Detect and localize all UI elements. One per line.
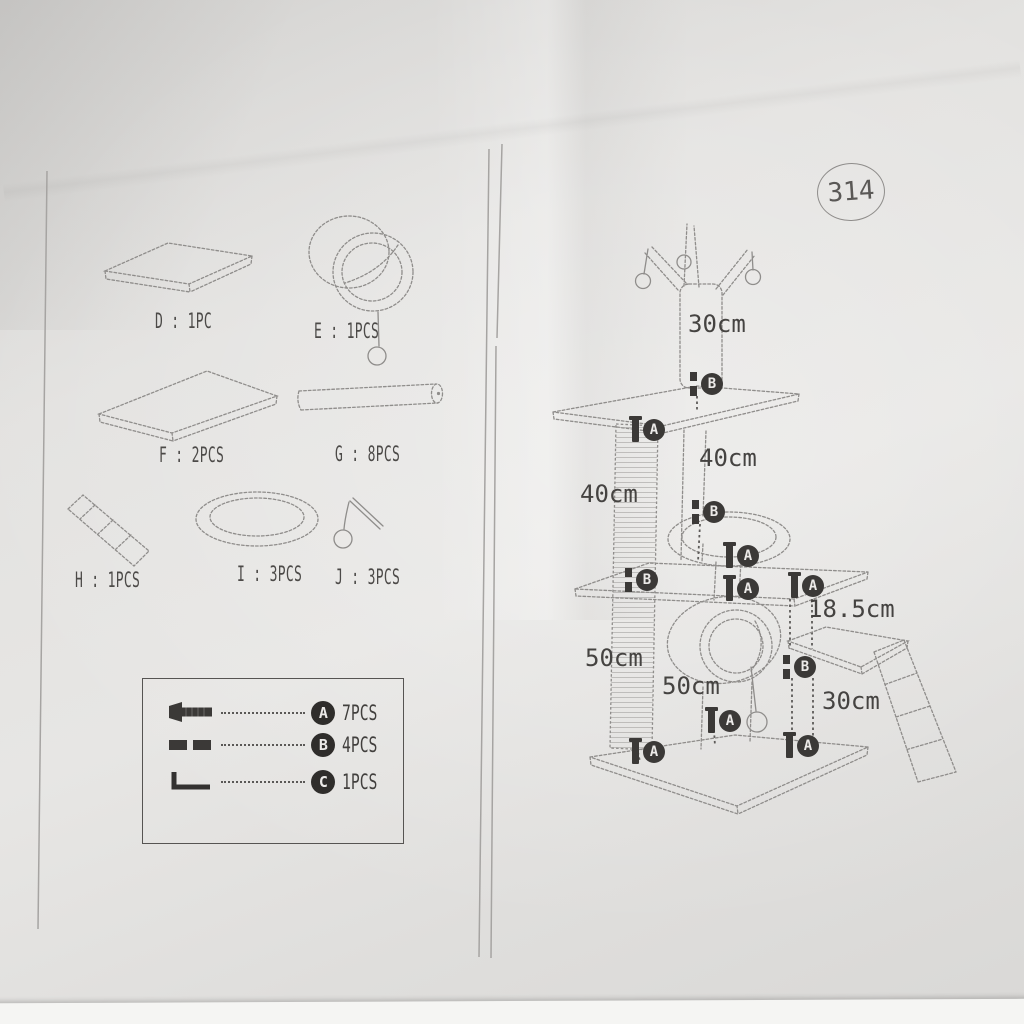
screw-icon xyxy=(632,418,639,442)
screw-icon xyxy=(791,574,798,598)
hardware-row-c: C 1PCS xyxy=(167,766,393,798)
instruction-sheet: 314 D : 1PC E : 1PCS F : 2PCS G : 8PCS H… xyxy=(0,0,1024,1024)
marker-a-bottom-right: A xyxy=(786,734,819,758)
bolt-icon xyxy=(690,372,697,396)
sketch-linework xyxy=(0,0,1024,1024)
screw-icon xyxy=(786,734,793,758)
part-h-ladder-sketch xyxy=(68,495,149,566)
leader-dots xyxy=(221,744,305,746)
hardware-legend-box: A 7PCS B 4PCS C 1PCS xyxy=(142,678,404,844)
hardware-row-b: B 4PCS xyxy=(167,729,393,761)
screw-icon xyxy=(726,544,733,568)
screw-icon xyxy=(632,740,639,764)
part-j-toy-sketch xyxy=(334,498,383,548)
hardware-qty-b: 4PCS xyxy=(342,733,377,757)
hardware-row-a: A 7PCS xyxy=(167,697,393,729)
screw-icon xyxy=(708,709,715,733)
measure-tunnel: 50cm xyxy=(662,674,720,698)
hardware-qty-a: 7PCS xyxy=(342,701,377,725)
marker-a-top-platform: A xyxy=(632,418,665,442)
part-label-i: I : 3PCS xyxy=(237,563,302,586)
leader-dots xyxy=(221,781,305,783)
hardware-letter-a: A xyxy=(311,701,335,725)
marker-a-right-column: A xyxy=(791,574,824,598)
screw-icon xyxy=(726,577,733,601)
measure-side-shelf: 18.5cm xyxy=(808,597,895,621)
model-number: 314 xyxy=(827,175,876,208)
cat-tree-sketch xyxy=(553,224,956,814)
part-label-e: E : 1PCS xyxy=(314,320,379,343)
part-g-pole-sketch xyxy=(298,384,443,410)
screw-icon xyxy=(167,701,215,725)
bolt-icon xyxy=(692,500,699,524)
marker-a-ring-2: A xyxy=(726,577,759,601)
measure-lower-scratch: 50cm xyxy=(585,646,643,670)
marker-a-bottom-left: A xyxy=(632,740,665,764)
bolt-icon xyxy=(625,568,632,592)
marker-b-side-shelf: B xyxy=(783,655,816,679)
part-label-h: H : 1PCS xyxy=(75,569,140,592)
part-d-board-sketch xyxy=(105,243,252,292)
part-f-board-sketch xyxy=(99,371,277,441)
bolt-icon xyxy=(167,733,215,757)
hardware-letter-b: B xyxy=(311,733,335,757)
hardware-letter-c: C xyxy=(311,770,335,794)
measure-upper-scratch: 40cm xyxy=(580,482,638,506)
part-label-j: J : 3PCS xyxy=(335,566,400,589)
part-label-g: G : 8PCS xyxy=(335,443,400,466)
marker-b-ring: B xyxy=(692,500,725,524)
part-label-d: D : 1PC xyxy=(155,310,212,333)
hardware-qty-c: 1PCS xyxy=(342,770,377,794)
marker-a-ring-1: A xyxy=(726,544,759,568)
part-i-ring-sketch xyxy=(196,492,318,546)
allen-key-icon xyxy=(167,770,215,794)
measure-top-post: 30cm xyxy=(688,312,746,336)
bolt-icon xyxy=(783,655,790,679)
paper-edge xyxy=(0,999,1024,1024)
marker-a-bottom-middle: A xyxy=(708,709,741,733)
leader-dots xyxy=(221,712,305,714)
measure-lower-side: 30cm xyxy=(822,689,880,713)
marker-b-top: B xyxy=(690,372,723,396)
measure-upper-post: 40cm xyxy=(699,446,757,470)
marker-b-mid-platform: B xyxy=(625,568,658,592)
part-label-f: F : 2PCS xyxy=(159,444,224,467)
